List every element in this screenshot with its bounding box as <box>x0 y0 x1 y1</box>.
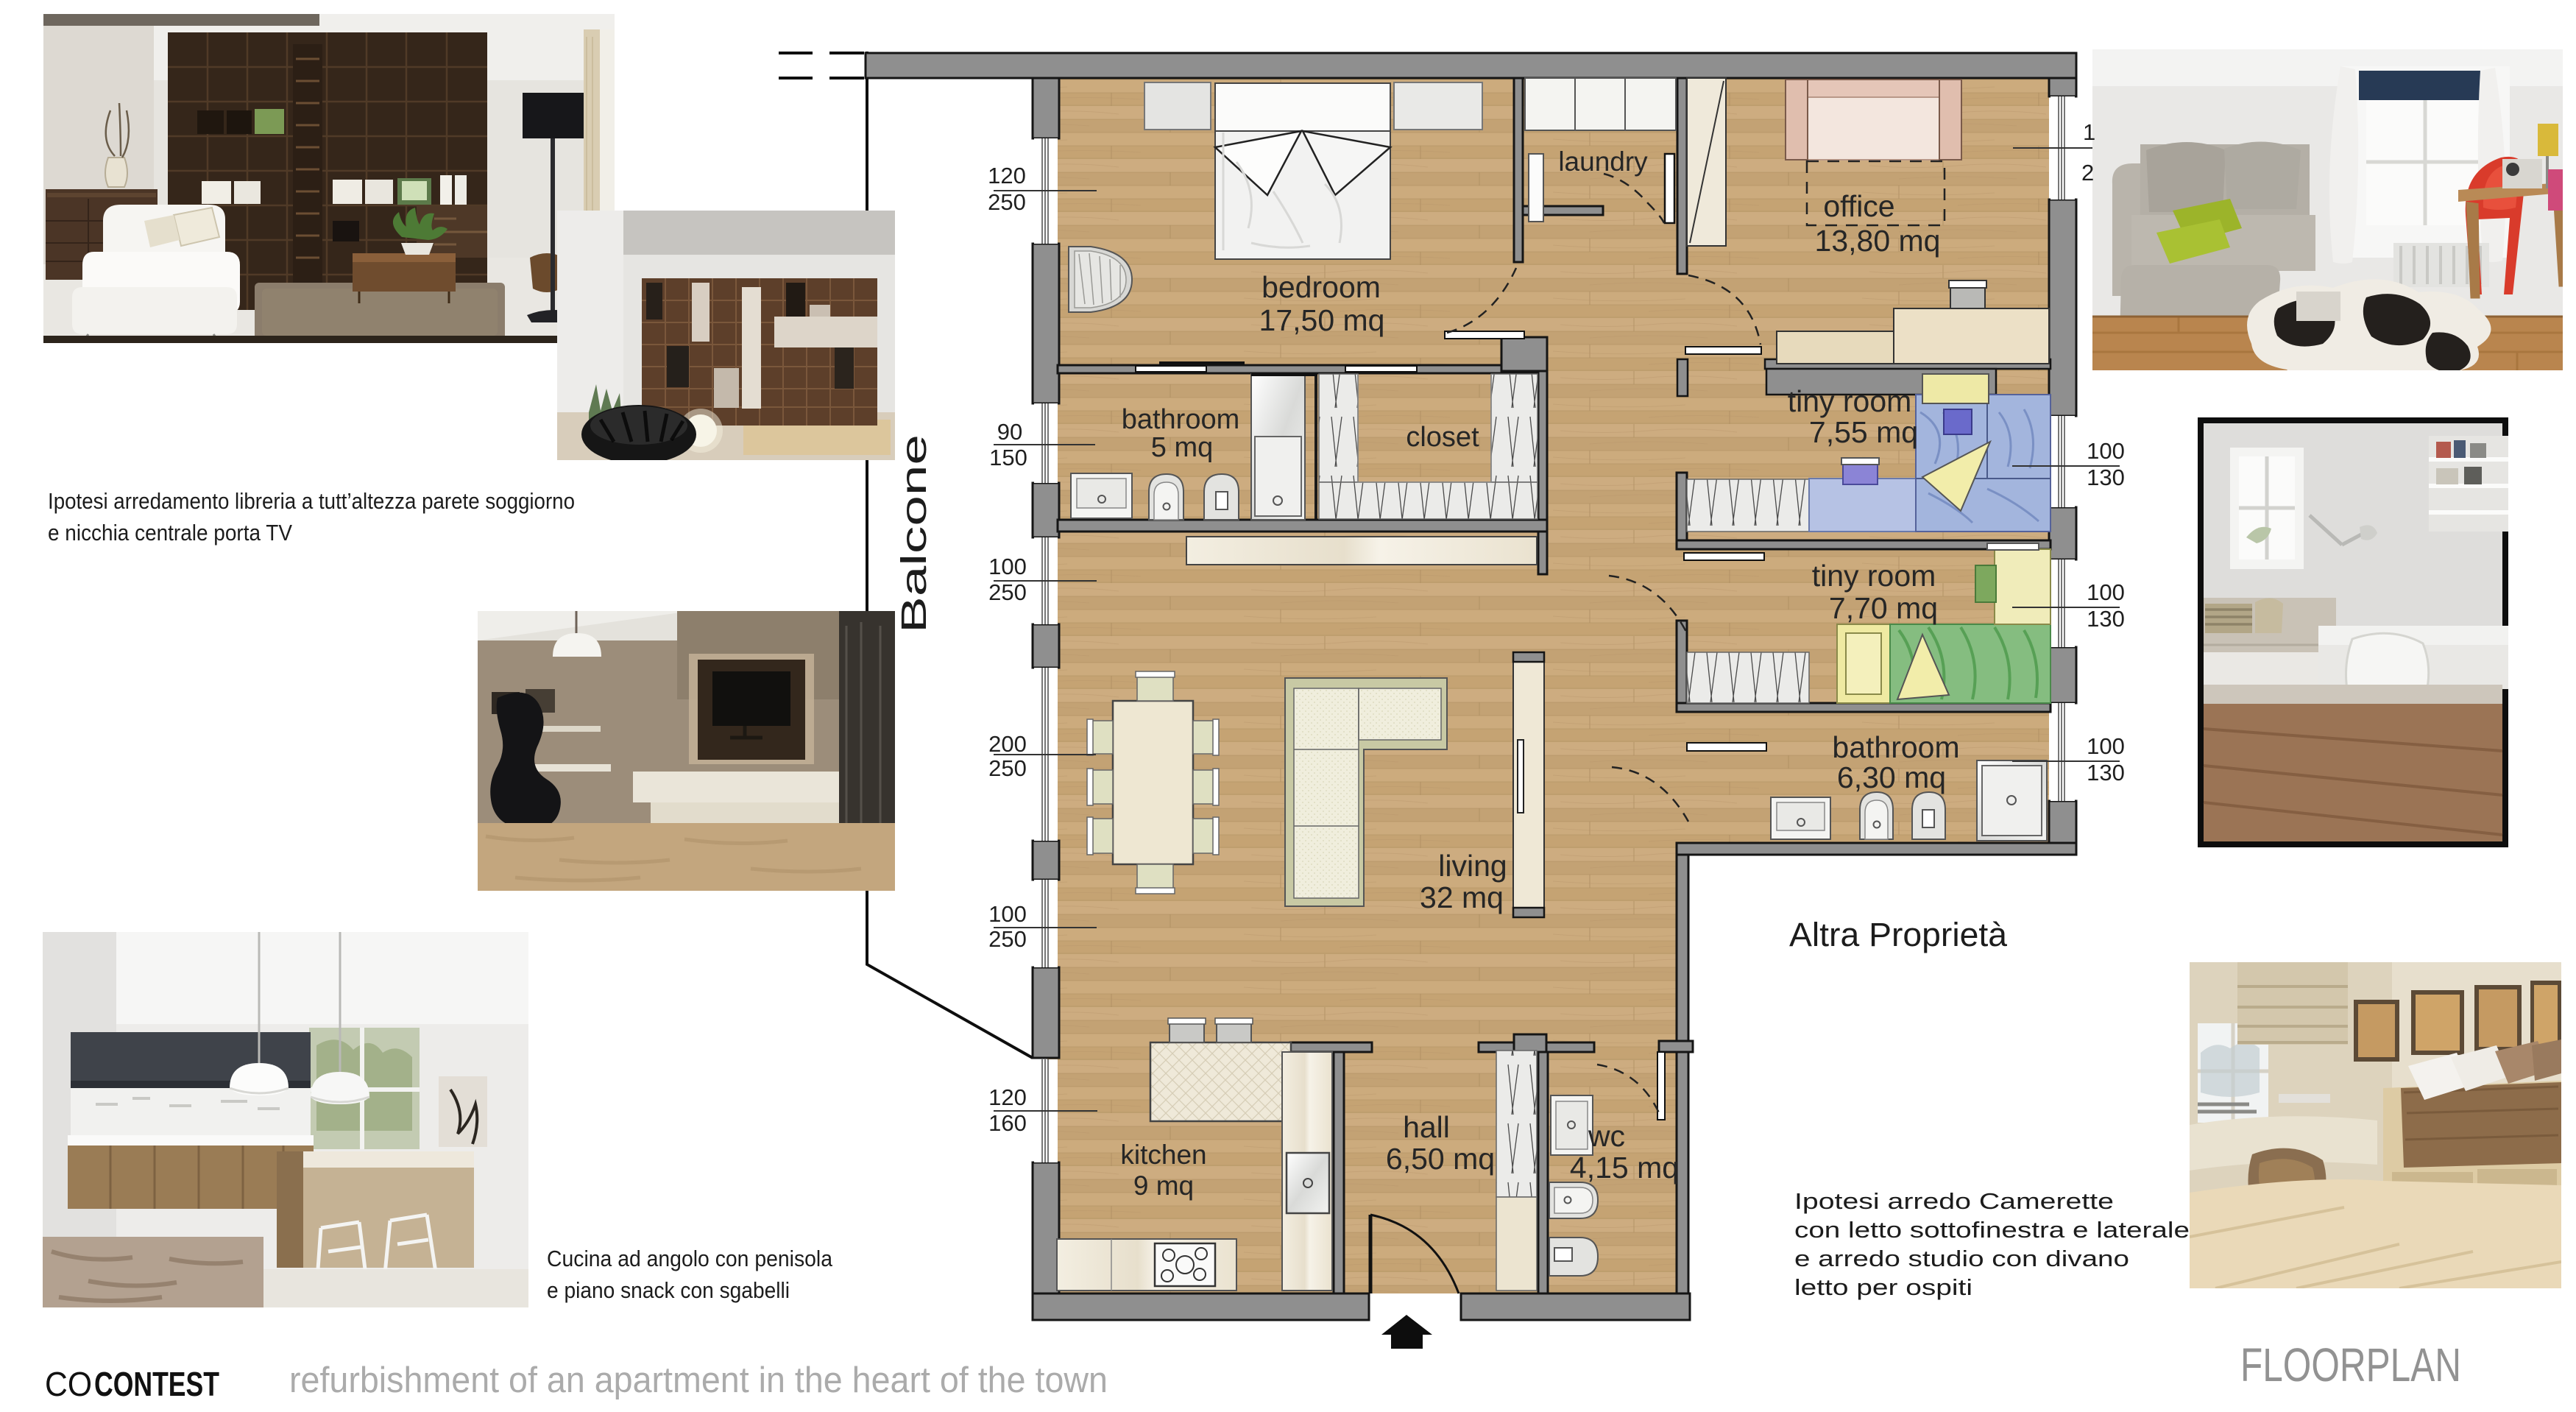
svg-text:13,80 mq: 13,80 mq <box>1815 224 1941 258</box>
svg-text:200: 200 <box>988 731 1027 757</box>
svg-text:e nicchia centrale porta TV: e nicchia centrale porta TV <box>48 520 292 546</box>
svg-text:living: living <box>1438 849 1507 883</box>
svg-text:120: 120 <box>988 1084 1027 1110</box>
svg-text:letto per ospiti: letto per ospiti <box>1794 1274 1972 1300</box>
svg-text:tiny room: tiny room <box>1788 384 1912 418</box>
svg-text:160: 160 <box>988 1110 1027 1136</box>
svg-text:7,55 mq: 7,55 mq <box>1809 415 1918 449</box>
svg-text:FLOORPLAN: FLOORPLAN <box>2240 1338 2461 1391</box>
svg-text:bathroom: bathroom <box>1122 404 1240 435</box>
svg-text:250: 250 <box>988 579 1027 605</box>
svg-text:bathroom: bathroom <box>1832 730 1959 764</box>
svg-text:100: 100 <box>2087 438 2125 464</box>
svg-text:wc: wc <box>1588 1119 1625 1153</box>
svg-text:laundry: laundry <box>1558 147 1648 177</box>
svg-text:Balcone: Balcone <box>895 434 934 633</box>
svg-text:32 mq: 32 mq <box>1420 880 1504 914</box>
svg-text:17,50 mq: 17,50 mq <box>1259 303 1385 337</box>
svg-text:9 mq: 9 mq <box>1133 1171 1194 1201</box>
svg-text:con letto sottofinestra e late: con letto sottofinestra e laterale <box>1794 1217 2190 1243</box>
svg-text:130: 130 <box>2087 465 2125 490</box>
svg-text:90: 90 <box>997 419 1022 445</box>
svg-text:250: 250 <box>988 926 1027 952</box>
svg-text:Ipotesi arredo Camerette: Ipotesi arredo Camerette <box>1794 1188 2114 1214</box>
svg-text:e arredo studio con divano: e arredo studio con divano <box>1794 1246 2129 1271</box>
svg-text:100: 100 <box>2087 733 2125 759</box>
svg-text:250: 250 <box>988 755 1027 781</box>
svg-text:e piano snack con sgabelli: e piano snack con sgabelli <box>547 1277 790 1303</box>
svg-text:6,30 mq: 6,30 mq <box>1837 760 1946 794</box>
svg-text:130: 130 <box>2087 606 2125 632</box>
svg-text:office: office <box>1823 189 1894 223</box>
svg-text:Cucina ad angolo con penisola: Cucina ad angolo con penisola <box>547 1246 833 1271</box>
svg-text:hall: hall <box>1403 1110 1450 1144</box>
svg-text:7,70 mq: 7,70 mq <box>1829 591 1938 625</box>
svg-text:4,15 mq: 4,15 mq <box>1570 1151 1679 1185</box>
svg-text:refurbishment of an apartment: refurbishment of an apartment in the hea… <box>289 1360 1108 1400</box>
svg-text:CONTEST: CONTEST <box>94 1365 219 1403</box>
svg-text:closet: closet <box>1406 422 1479 453</box>
svg-text:100: 100 <box>988 554 1027 579</box>
svg-text:150: 150 <box>989 445 1027 470</box>
svg-text:100: 100 <box>2087 579 2125 605</box>
svg-text:tiny room: tiny room <box>1812 559 1936 593</box>
svg-text:CO: CO <box>45 1365 92 1403</box>
svg-text:bedroom: bedroom <box>1262 270 1381 304</box>
svg-text:5 mq: 5 mq <box>1151 432 1213 463</box>
svg-text:2: 2 <box>2081 160 2094 186</box>
svg-text:120: 120 <box>988 163 1026 188</box>
svg-text:kitchen: kitchen <box>1120 1140 1206 1170</box>
svg-text:Altra Proprietà: Altra Proprietà <box>1789 916 2008 953</box>
svg-text:250: 250 <box>988 189 1026 215</box>
svg-text:100: 100 <box>988 901 1027 927</box>
svg-text:130: 130 <box>2087 760 2125 786</box>
svg-text:1: 1 <box>2083 119 2095 145</box>
svg-text:6,50 mq: 6,50 mq <box>1386 1142 1495 1176</box>
svg-text:Ipotesi arredamento libreria a: Ipotesi arredamento libreria a tutt’alte… <box>48 488 575 514</box>
